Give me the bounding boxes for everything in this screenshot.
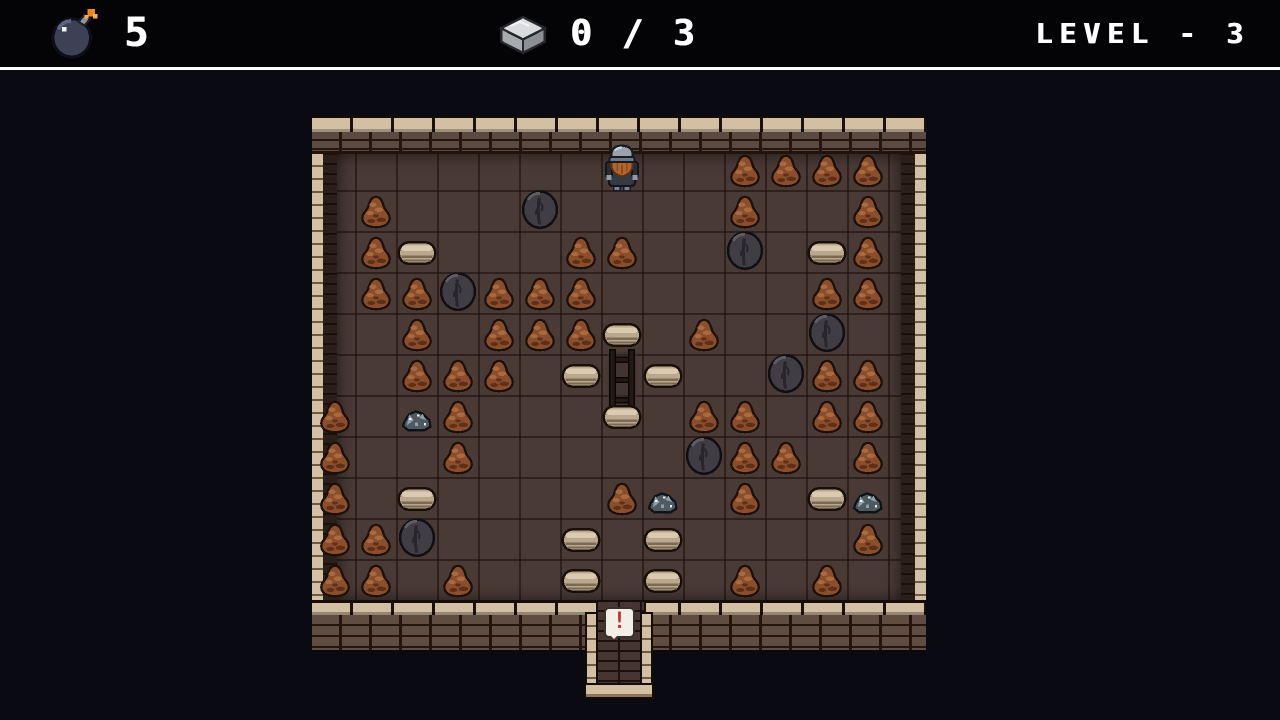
tile-dirt	[765, 436, 806, 477]
tile-dirt	[314, 436, 355, 477]
tile-dirt	[396, 354, 437, 395]
tile-slab	[806, 231, 847, 272]
exit-rail-left	[585, 612, 598, 689]
tile-dirt	[847, 272, 888, 313]
tile-slab	[642, 559, 683, 600]
tile-boulder	[683, 436, 724, 477]
tile-slab	[396, 231, 437, 272]
hud-bar: 5 0 / 3 LEVEL - 3	[0, 0, 1280, 70]
tile-dirt	[314, 518, 355, 559]
tile-dirt	[847, 231, 888, 272]
tile-dirt	[437, 436, 478, 477]
bomb-count: 5	[124, 0, 148, 67]
tile-dirt	[355, 559, 396, 600]
tile-dirt	[724, 436, 765, 477]
tile-dirt	[683, 313, 724, 354]
game-screen: { "palette": { "bg_play": "#0a0a13", "hu…	[0, 0, 1280, 720]
tile-boulder	[806, 313, 847, 354]
tile-slab	[642, 354, 683, 395]
tile-dirt	[478, 354, 519, 395]
tile-dirt	[519, 272, 560, 313]
tile-dirt	[724, 190, 765, 231]
tile-slab	[601, 313, 642, 354]
tile-slab	[601, 395, 642, 436]
tile-dirt	[478, 272, 519, 313]
tile-slab	[560, 354, 601, 395]
tile-dirt	[724, 395, 765, 436]
tile-boulder	[519, 190, 560, 231]
exit-rail-right	[640, 612, 653, 689]
tile-dirt	[355, 272, 396, 313]
tile-dirt	[847, 518, 888, 559]
tile-player	[601, 149, 642, 190]
stone-progress: 0 / 3	[570, 0, 698, 67]
tile-dirt	[683, 395, 724, 436]
tile-dirt	[396, 272, 437, 313]
tile-boulder	[765, 354, 806, 395]
tile-rubble	[847, 477, 888, 518]
tile-dirt	[724, 149, 765, 190]
tile-dirt	[560, 313, 601, 354]
tile-boulder	[396, 518, 437, 559]
tile-dirt	[519, 313, 560, 354]
level-indicator: LEVEL - 3	[1035, 0, 1250, 67]
tile-slab	[642, 518, 683, 559]
tile-dirt	[437, 395, 478, 436]
tile-dirt	[806, 354, 847, 395]
tile-dirt	[355, 518, 396, 559]
tile-slab	[806, 477, 847, 518]
tile-dirt	[314, 559, 355, 600]
tile-gate	[601, 354, 642, 395]
tile-boulder	[437, 272, 478, 313]
tile-dirt	[765, 149, 806, 190]
board[interactable]	[312, 115, 926, 650]
tile-dirt	[437, 354, 478, 395]
tile-dirt	[355, 190, 396, 231]
tile-dirt	[806, 559, 847, 600]
tile-dirt	[560, 272, 601, 313]
tile-rubble	[396, 395, 437, 436]
tile-dirt	[724, 559, 765, 600]
tile-dirt	[560, 231, 601, 272]
dungeon-room: !	[312, 115, 926, 650]
tile-boulder	[724, 231, 765, 272]
tile-dirt	[847, 190, 888, 231]
exit-sign: !	[604, 607, 635, 638]
exit-cap	[584, 683, 654, 699]
tile-dirt	[355, 231, 396, 272]
tile-dirt	[847, 354, 888, 395]
tile-dirt	[437, 559, 478, 600]
tile-dirt	[601, 477, 642, 518]
tile-dirt	[806, 395, 847, 436]
tile-dirt	[314, 477, 355, 518]
tile-dirt	[806, 272, 847, 313]
tile-dirt	[478, 313, 519, 354]
tile-dirt	[847, 395, 888, 436]
tile-dirt	[314, 395, 355, 436]
tile-dirt	[847, 149, 888, 190]
tile-dirt	[396, 313, 437, 354]
tile-dirt	[806, 149, 847, 190]
tile-slab	[560, 559, 601, 600]
stone-icon	[498, 14, 548, 56]
tile-slab	[396, 477, 437, 518]
tile-dirt	[847, 436, 888, 477]
tile-rubble	[642, 477, 683, 518]
exit-sign-symbol: !	[613, 609, 626, 634]
bomb-icon	[50, 8, 98, 60]
tile-dirt	[601, 231, 642, 272]
tile-dirt	[724, 477, 765, 518]
tile-slab	[560, 518, 601, 559]
